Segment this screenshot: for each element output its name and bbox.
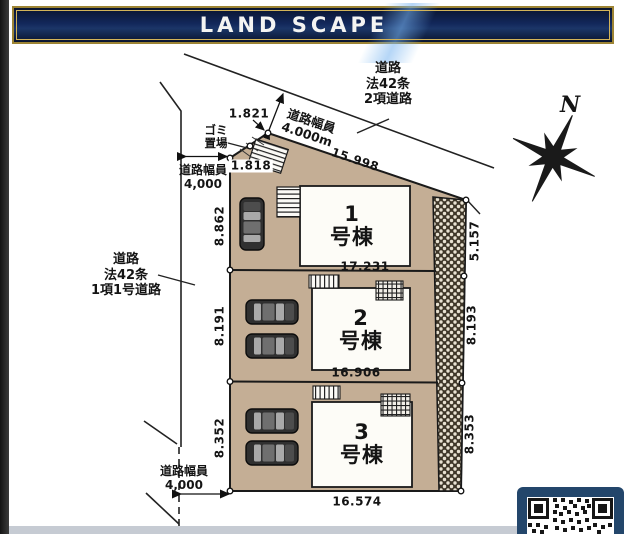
building-1-porch-stairs xyxy=(277,187,300,217)
car-lot3-a xyxy=(246,409,298,433)
lot3-entry-stairs xyxy=(313,386,340,399)
north-road-width-arrow xyxy=(269,94,283,130)
slope-hatch-strip xyxy=(433,197,466,491)
dim-width-lot1: 17.231 xyxy=(340,261,389,274)
building-3-label: 3 号棟 xyxy=(340,421,384,467)
dim-right-lot1: 5.157 xyxy=(469,221,482,261)
west-road-edge xyxy=(160,82,181,447)
dim-left-lot2: 8.191 xyxy=(214,306,227,346)
car-lot3-b xyxy=(246,441,298,465)
west-road-corner-mark-2 xyxy=(146,493,179,524)
dim-1821-leader xyxy=(253,120,264,130)
dim-chamfer-upper: 1.821 xyxy=(229,108,269,121)
west-road-width-label: 道路幅員 4,000 xyxy=(179,163,227,191)
qr-code xyxy=(527,497,614,534)
building-3-balcony xyxy=(381,394,410,416)
building-2-balcony xyxy=(376,281,403,300)
garbage-place-label: ゴミ 置場 xyxy=(205,124,228,150)
compass-rose-icon xyxy=(513,115,595,201)
car-lot2-a xyxy=(246,300,298,324)
compass-north-label: N xyxy=(560,94,580,116)
west-road-corner-mark-1 xyxy=(144,421,177,444)
building-1-label: 1 号棟 xyxy=(330,203,374,249)
car-lot1 xyxy=(240,198,264,250)
car-lot2-b xyxy=(246,334,298,358)
west-road-annotation: 道路 法42条 1項1号道路 xyxy=(91,252,161,299)
north-road-annotation: 道路 法42条 2項道路 xyxy=(364,61,412,108)
lot2-entry-stairs xyxy=(309,275,339,288)
north-road-leader-tick xyxy=(357,119,389,133)
south-road-width-label: 道路幅員 4,000 xyxy=(160,464,208,492)
northeast-corner-tick xyxy=(467,200,480,214)
qr-code-frame xyxy=(517,487,624,534)
dim-right-lot2: 8.193 xyxy=(466,305,479,345)
dim-right-lot3: 8.353 xyxy=(464,414,477,454)
building-2-label: 2 号棟 xyxy=(339,307,383,353)
dim-left-lot3: 8.352 xyxy=(214,418,227,458)
dim-width-lot2: 16.906 xyxy=(331,367,380,380)
lot-divider-2-3 xyxy=(230,382,438,383)
dim-chamfer-lower: 1.818 xyxy=(229,160,273,173)
land-scape-site-plan-page: LAND SCAPE xyxy=(0,0,624,534)
dim-left-lot1: 8.862 xyxy=(214,206,227,246)
lot-divider-1-2 xyxy=(230,270,436,271)
dim-width-lot3: 16.574 xyxy=(332,496,381,509)
west-road-leader-tick xyxy=(158,275,195,285)
